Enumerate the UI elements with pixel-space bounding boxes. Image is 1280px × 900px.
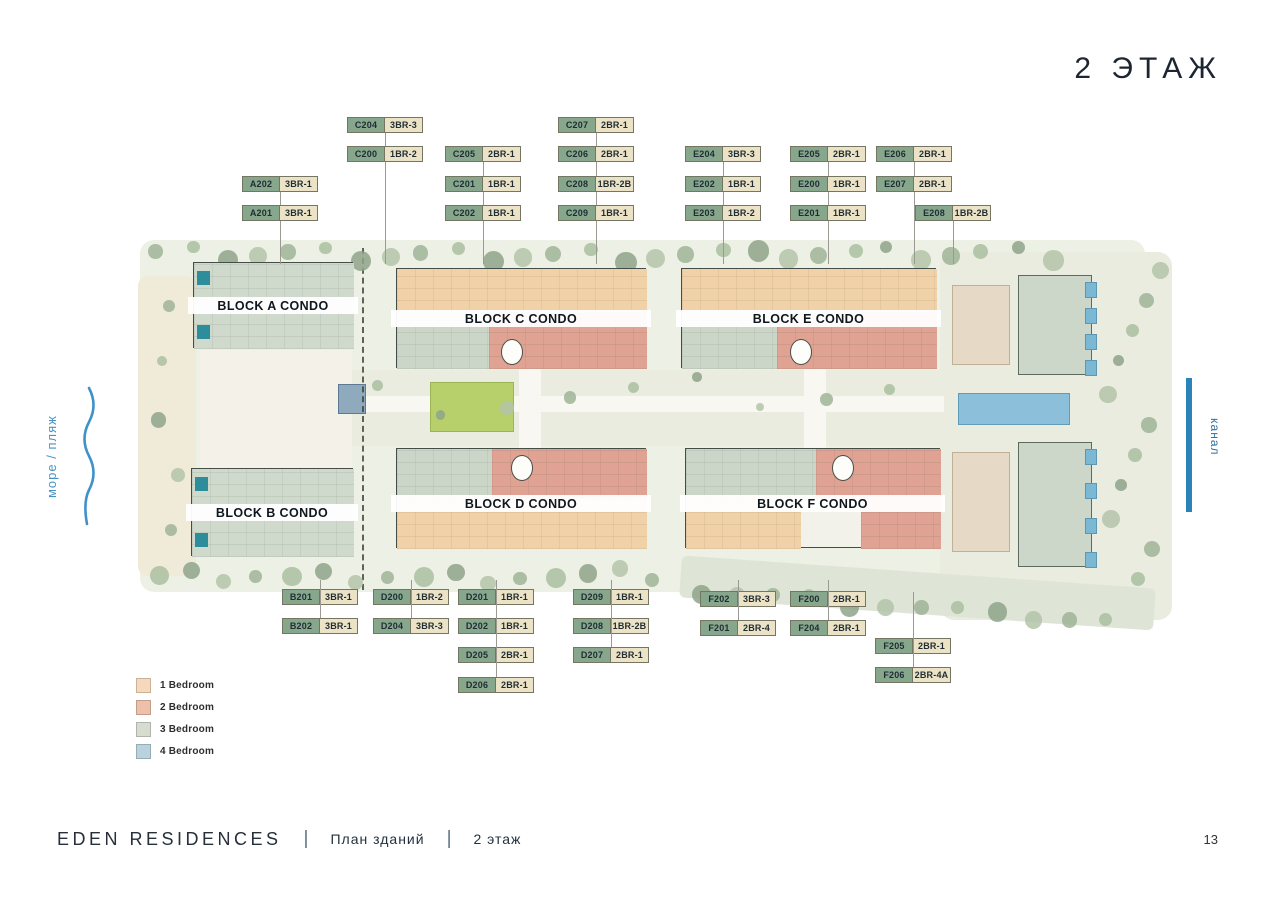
unit-type: 3BR-3 [385,117,423,133]
unit-number: C209 [558,205,596,221]
tree [187,241,199,253]
unit-type: 1BR-1 [483,205,521,221]
canal-label: канал [1208,418,1222,498]
unit-number: C200 [347,146,385,162]
unit-type: 2BR-1 [596,146,634,162]
stair-core [511,455,533,481]
tree [677,246,694,263]
block-e: BLOCK E CONDO [681,268,936,368]
legend-item: 3 Bedroom [136,722,214,737]
unit-type: 2BR-1 [496,677,534,693]
block-label-band: BLOCK B CONDO [186,504,358,521]
unit-type: 2BR-4 [738,620,776,636]
leader-line [320,580,321,618]
tree [280,244,295,259]
unit-number: F204 [790,620,828,636]
unit-type: 2BR-1 [483,146,521,162]
tree [1144,541,1160,557]
leader-line [953,221,954,264]
leader-line [723,221,724,264]
sea-wave-icon [78,386,98,526]
tree [1131,572,1145,586]
block-a: BLOCK A CONDO [193,262,353,348]
leader-line [385,162,386,264]
tree [942,247,959,264]
unit-number: E205 [790,146,828,162]
unit-zone-sage [397,449,492,499]
townhouse-row [1018,275,1092,375]
unit-callout-C207: C2072BR-1 [558,117,634,133]
mini-pool [1085,308,1097,324]
unit-number: C208 [558,176,596,192]
walkway [804,366,826,450]
unit-callout-C209: C2091BR-1 [558,205,634,221]
unit-callout-C205: C2052BR-1 [445,146,521,162]
unit-callout-C204: C2043BR-3 [347,117,423,133]
unit-number: F200 [790,591,828,607]
unit-callout-C206: C2062BR-1 [558,146,634,162]
unit-number: D208 [573,618,611,634]
townhouse-row [1018,442,1092,567]
unit-callout-C201: C2011BR-1 [445,176,521,192]
unit-zone-orange [682,269,937,313]
unit-number: B202 [282,618,320,634]
unit-number: E208 [915,205,953,221]
unit-callout-E205: E2052BR-1 [790,146,866,162]
legend-item: 4 Bedroom [136,744,214,759]
leader-line [828,580,829,620]
block-d: BLOCK D CONDO [396,448,646,548]
unit-callout-E200: E2001BR-1 [790,176,866,192]
unit-type: 1BR-1 [496,618,534,634]
unit-callout-A202: A2023BR-1 [242,176,318,192]
stair-core [790,339,812,365]
legend-swatch [136,700,151,715]
unit-type: 2BR-1 [596,117,634,133]
footer: EDEN RESIDENCES | План зданий | 2 этаж [57,828,521,850]
mini-pool [1085,552,1097,568]
unit-type: 1BR-1 [496,589,534,605]
legend-label: 2 Bedroom [160,702,214,713]
clubhouse [952,452,1010,552]
tree [884,384,895,395]
plunge-pool [195,533,208,547]
plunge-pool [197,271,210,285]
property-line [362,248,364,590]
leader-line [411,580,412,618]
unit-type: 3BR-3 [411,618,449,634]
footer-floor: 2 этаж [474,831,522,847]
tree [988,602,1007,621]
tree [756,403,764,411]
tree [692,372,702,382]
unit-callout-D206: D2062BR-1 [458,677,534,693]
legend-label: 1 Bedroom [160,680,214,691]
leader-line [828,221,829,264]
unit-callout-E201: E2011BR-1 [790,205,866,221]
unit-type: 1BR-1 [483,176,521,192]
unit-number: D201 [458,589,496,605]
unit-number: F205 [875,638,913,654]
page-number: 13 [1204,832,1218,847]
tree [1062,612,1077,627]
unit-number: D206 [458,677,496,693]
unit-number: E204 [685,146,723,162]
unit-type: 3BR-1 [280,176,318,192]
tree [810,247,827,264]
unit-number: C204 [347,117,385,133]
unit-number: C207 [558,117,596,133]
unit-callout-E207: E2072BR-1 [876,176,952,192]
unit-callout-B202: B2023BR-1 [282,618,358,634]
walkway [519,366,541,450]
stair-core [832,455,854,481]
pool [958,393,1070,425]
tree [914,600,929,615]
floor-plan-page: 2 ЭТАЖ BLOCK A CONDOBLOCK B CONDOBLOCK C… [0,0,1280,900]
unit-callout-D207: D2072BR-1 [573,647,649,663]
tree [612,560,628,576]
block-label: BLOCK E CONDO [753,312,864,326]
unit-number: F206 [875,667,913,683]
unit-callout-C202: C2021BR-1 [445,205,521,221]
stair-core [501,339,523,365]
tree [1012,241,1025,254]
unit-callout-C200: C2001BR-2 [347,146,423,162]
tree [645,573,659,587]
block-f: BLOCK F CONDO [685,448,940,548]
unit-number: F202 [700,591,738,607]
block-label-band: BLOCK A CONDO [188,297,358,314]
leader-line [483,221,484,264]
legend-item: 2 Bedroom [136,700,214,715]
unit-type: 2BR-4A [913,667,951,683]
block-label-band: BLOCK E CONDO [676,310,941,327]
unit-number: C206 [558,146,596,162]
tree [820,393,833,406]
unit-number: E207 [876,176,914,192]
unit-number: C201 [445,176,483,192]
block-label: BLOCK D CONDO [465,497,577,511]
unit-type: 3BR-3 [723,146,761,162]
unit-type: 3BR-1 [320,618,358,634]
block-label-band: BLOCK D CONDO [391,495,651,512]
tree [148,244,163,259]
leader-line [738,580,739,620]
unit-type: 1BR-1 [828,176,866,192]
plaza [200,350,352,468]
tree [1115,479,1127,491]
block-label: BLOCK A CONDO [217,299,328,313]
unit-number: E201 [790,205,828,221]
tree [249,570,262,583]
tree [545,246,561,262]
block-label: BLOCK C CONDO [465,312,577,326]
unit-callout-E202: E2021BR-1 [685,176,761,192]
unit-type: 1BR-1 [611,589,649,605]
unit-type: 1BR-2 [411,589,449,605]
leader-line [913,592,914,667]
unit-type: 3BR-1 [280,205,318,221]
tree [436,410,445,419]
block-label: BLOCK B CONDO [216,506,328,520]
unit-number: A202 [242,176,280,192]
unit-type: 2BR-1 [828,146,866,162]
unit-type: 2BR-1 [914,146,952,162]
tree [1043,250,1063,270]
unit-type: 2BR-1 [611,647,649,663]
footer-section: План зданий [330,831,424,847]
tree [413,245,429,261]
mini-pool [1085,449,1097,465]
tree [877,599,894,616]
tree [282,567,302,587]
legend-swatch [136,744,151,759]
footer-divider: | [304,828,309,850]
plunge-pool [197,325,210,339]
unit-callout-F206: F2062BR-4A [875,667,951,683]
unit-zone-sage [686,449,816,499]
clubhouse [952,285,1010,365]
unit-number: D202 [458,618,496,634]
tree [579,564,597,582]
block-c: BLOCK C CONDO [396,268,646,368]
tree [646,249,665,268]
unit-callout-E206: E2062BR-1 [876,146,952,162]
mini-pool [1085,334,1097,350]
block-label-band: BLOCK F CONDO [680,495,945,512]
unit-number: E203 [685,205,723,221]
leader-line [914,192,915,264]
unit-number: D207 [573,647,611,663]
unit-type: 1BR-1 [723,176,761,192]
tree [500,401,514,415]
unit-type: 1BR-2B [611,618,649,634]
unit-number: D200 [373,589,411,605]
unit-number: D209 [573,589,611,605]
plunge-pool [195,477,208,491]
tree [447,564,465,582]
unit-number: B201 [282,589,320,605]
block-b: BLOCK B CONDO [191,468,353,556]
mini-pool [1085,360,1097,376]
mini-pool [1085,483,1097,499]
unit-callout-F201: F2012BR-4 [700,620,776,636]
unit-type: 3BR-3 [738,591,776,607]
tree [513,572,527,586]
tree [779,249,798,268]
legend-swatch [136,722,151,737]
legend: 1 Bedroom2 Bedroom3 Bedroom4 Bedroom [136,678,214,766]
unit-type: 1BR-1 [828,205,866,221]
unit-type: 2BR-1 [496,647,534,663]
unit-type: 3BR-1 [320,589,358,605]
unit-callout-A201: A2013BR-1 [242,205,318,221]
leader-line [280,221,281,264]
unit-number: F201 [700,620,738,636]
unit-number: C202 [445,205,483,221]
unit-type: 1BR-1 [596,205,634,221]
unit-type: 2BR-1 [913,638,951,654]
unit-type: 1BR-2 [723,205,761,221]
unit-number: E202 [685,176,723,192]
unit-type: 2BR-1 [914,176,952,192]
unit-callout-D204: D2043BR-3 [373,618,449,634]
unit-number: D205 [458,647,496,663]
tree [372,380,383,391]
legend-label: 3 Bedroom [160,724,214,735]
unit-type: 1BR-2B [953,205,991,221]
leader-line [611,580,612,647]
tree [165,524,177,536]
brand-logo: EDEN RESIDENCES [57,829,282,850]
tree [171,468,185,482]
unit-type: 2BR-1 [828,591,866,607]
tree [1128,448,1142,462]
legend-label: 4 Bedroom [160,746,214,757]
canal-lines-icon [1186,378,1192,512]
mini-pool [1085,282,1097,298]
legend-swatch [136,678,151,693]
unit-type: 1BR-2B [596,176,634,192]
unit-callout-C208: C2081BR-2B [558,176,634,192]
tree [628,382,639,393]
unit-zone-orange [397,269,647,313]
tree [951,601,964,614]
tree [151,412,167,428]
tree [1025,611,1042,628]
mini-pool [1085,518,1097,534]
legend-item: 1 Bedroom [136,678,214,693]
unit-number: C205 [445,146,483,162]
beach-label: море / пляж [44,392,59,522]
unit-type: 2BR-1 [828,620,866,636]
unit-number: E206 [876,146,914,162]
unit-number: E200 [790,176,828,192]
unit-number: D204 [373,618,411,634]
unit-type: 1BR-2 [385,146,423,162]
tree [1102,510,1120,528]
leader-line [496,580,497,677]
footer-divider: | [447,828,452,850]
unit-callout-E208: E2081BR-2B [915,205,991,221]
leader-line [596,221,597,264]
unit-callout-E203: E2031BR-2 [685,205,761,221]
block-label: BLOCK F CONDO [757,497,868,511]
tree [1141,417,1157,433]
unit-callout-E204: E2043BR-3 [685,146,761,162]
unit-callout-F204: F2042BR-1 [790,620,866,636]
block-label-band: BLOCK C CONDO [391,310,651,327]
unit-number: A201 [242,205,280,221]
